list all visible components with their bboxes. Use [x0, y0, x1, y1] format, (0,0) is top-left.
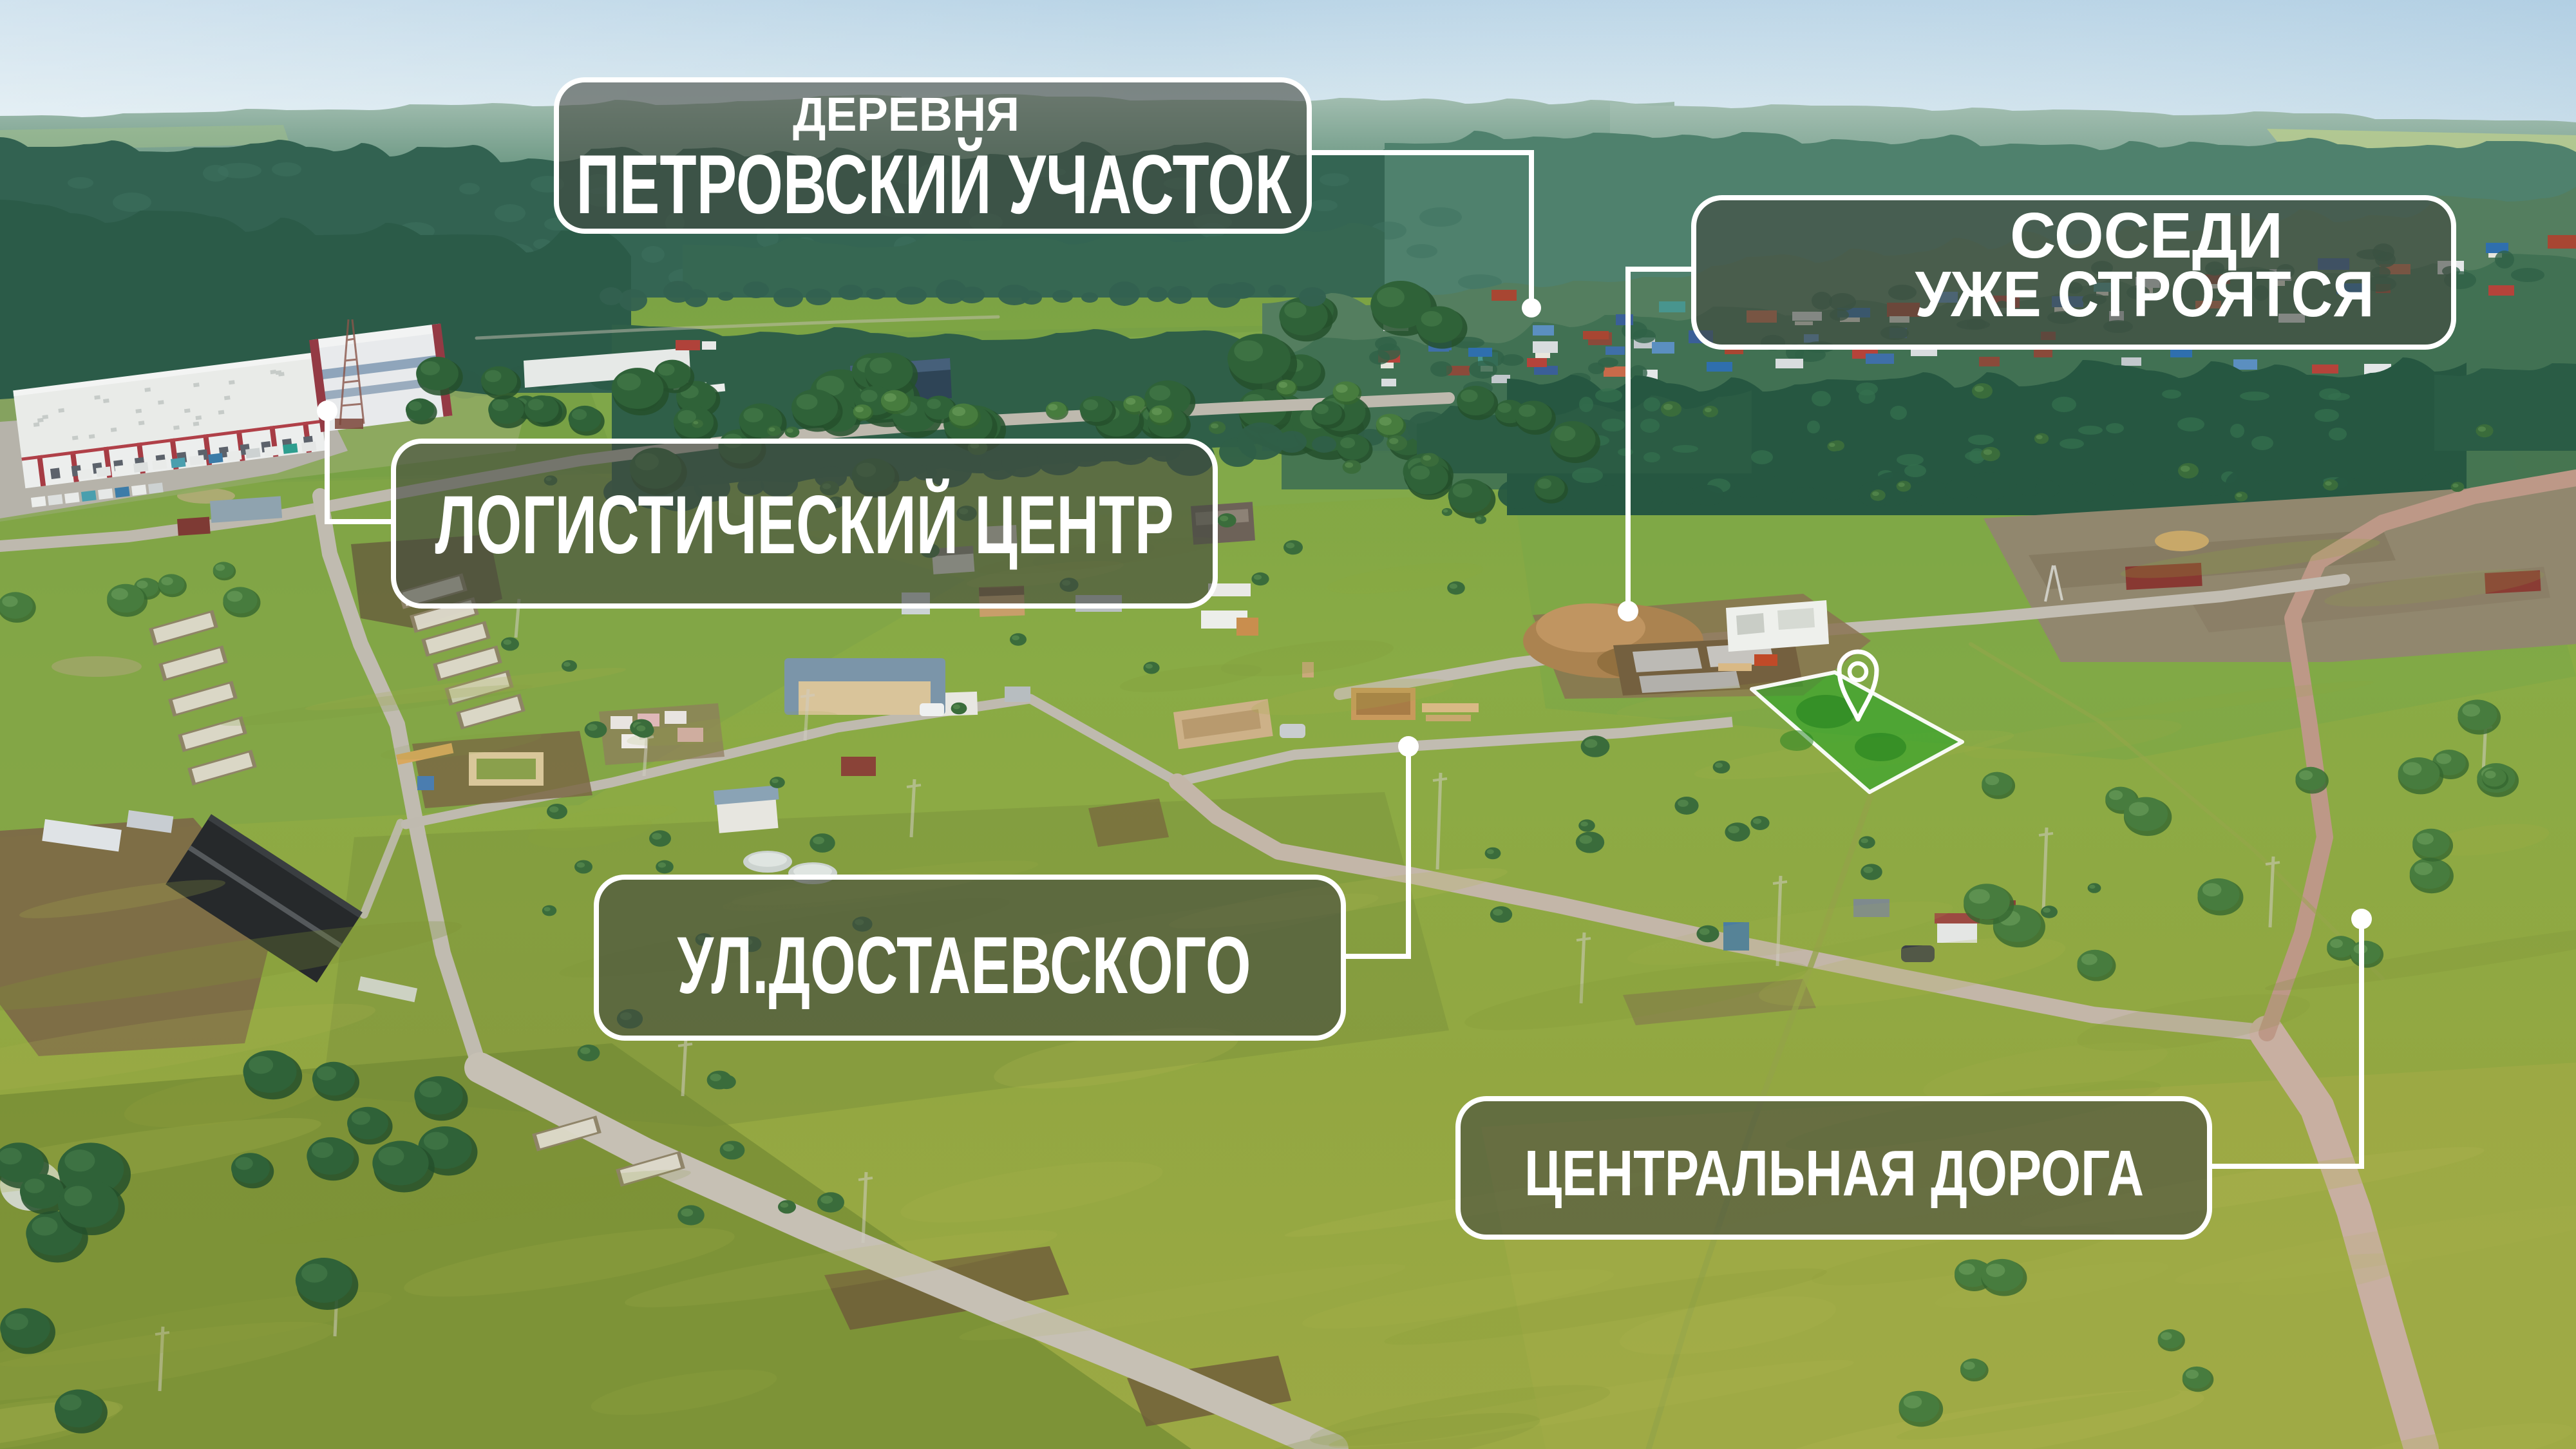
svg-text:ДЕРЕВНЯ: ДЕРЕВНЯ: [793, 88, 1019, 141]
svg-text:УЖЕ СТРОЯТСЯ: УЖЕ СТРОЯТСЯ: [1915, 258, 2374, 330]
svg-text:ПЕТРОВСКИЙ УЧАСТОК: ПЕТРОВСКИЙ УЧАСТОК: [576, 137, 1292, 231]
svg-text:ЛОГИСТИЧЕСКИЙ ЦЕНТР: ЛОГИСТИЧЕСКИЙ ЦЕНТР: [435, 478, 1174, 571]
svg-text:УЛ.ДОСТАЕВСКОГО: УЛ.ДОСТАЕВСКОГО: [677, 921, 1251, 1010]
svg-text:ЦЕНТРАЛЬНАЯ ДОРОГА: ЦЕНТРАЛЬНАЯ ДОРОГА: [1524, 1137, 2144, 1209]
